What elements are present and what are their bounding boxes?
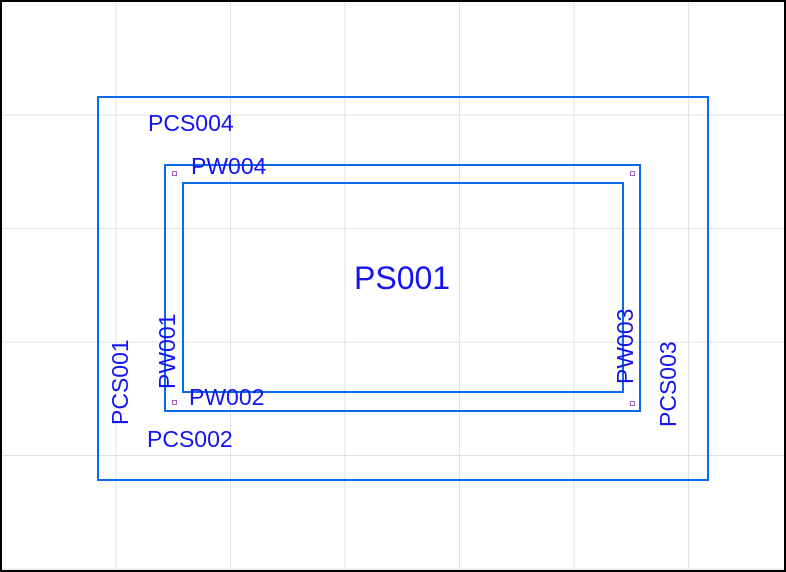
- label-pw002[interactable]: PW002: [189, 386, 264, 409]
- mounting-point-marker[interactable]: [630, 171, 635, 176]
- mounting-point-marker[interactable]: [630, 401, 635, 406]
- label-ps001[interactable]: PS001: [354, 262, 450, 294]
- drawing-canvas[interactable]: PCS004 PW004 PS001 PW002 PCS002 PCS001 P…: [0, 0, 786, 572]
- mounting-point-marker[interactable]: [172, 400, 177, 405]
- label-pw004[interactable]: PW004: [191, 155, 266, 178]
- label-pcs003[interactable]: PCS003: [657, 341, 680, 427]
- label-pw003[interactable]: PW003: [614, 309, 637, 384]
- mounting-point-marker[interactable]: [172, 171, 177, 176]
- label-pcs002[interactable]: PCS002: [147, 428, 233, 451]
- label-pcs001[interactable]: PCS001: [109, 339, 132, 425]
- label-pcs004[interactable]: PCS004: [148, 112, 234, 135]
- label-pw001[interactable]: PW001: [156, 314, 179, 389]
